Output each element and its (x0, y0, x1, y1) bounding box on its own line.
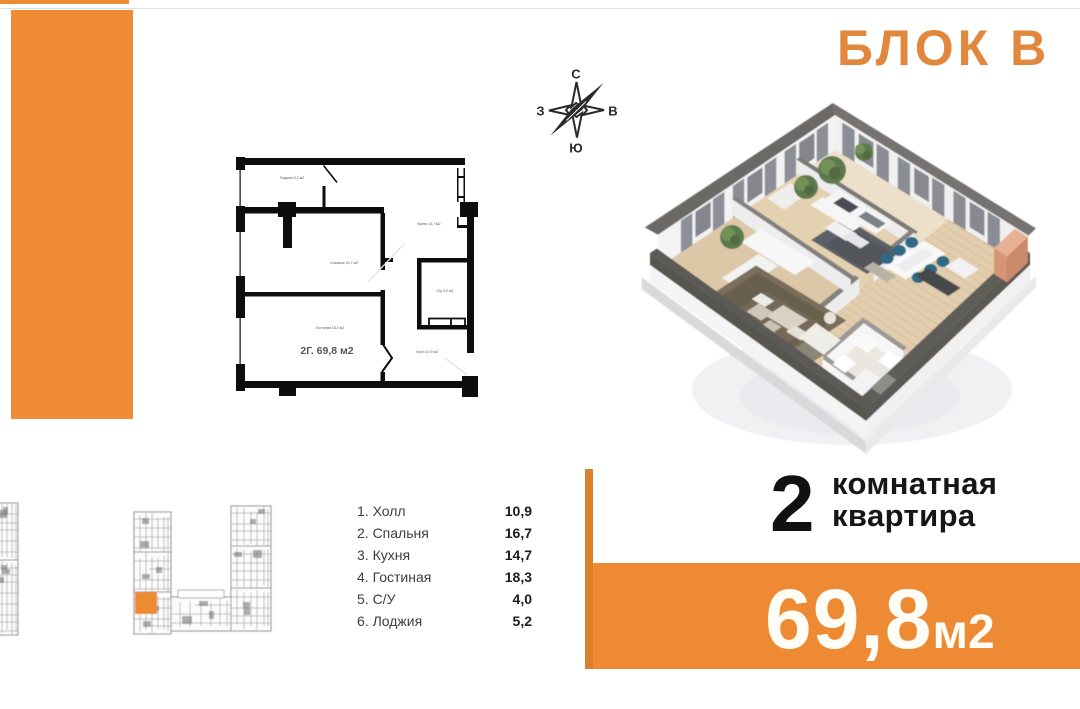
svg-text:В: В (608, 104, 617, 119)
svg-text:Холл 10,9 м2: Холл 10,9 м2 (416, 350, 438, 354)
svg-text:С/у 4,0 м2: С/у 4,0 м2 (437, 289, 454, 293)
svg-text:Ю: Ю (569, 141, 582, 156)
svg-text:Гостиная 18,3 м2: Гостиная 18,3 м2 (316, 326, 345, 330)
svg-text:Спальня 16,7 м2: Спальня 16,7 м2 (330, 261, 358, 265)
svg-text:Кухня 14,7 м2: Кухня 14,7 м2 (417, 222, 440, 226)
svg-text:С: С (571, 67, 581, 82)
svg-text:2Г. 69,8 м2: 2Г. 69,8 м2 (300, 345, 353, 357)
svg-text:З: З (536, 104, 544, 119)
svg-text:Лоджия 5,2 м2: Лоджия 5,2 м2 (280, 176, 304, 180)
